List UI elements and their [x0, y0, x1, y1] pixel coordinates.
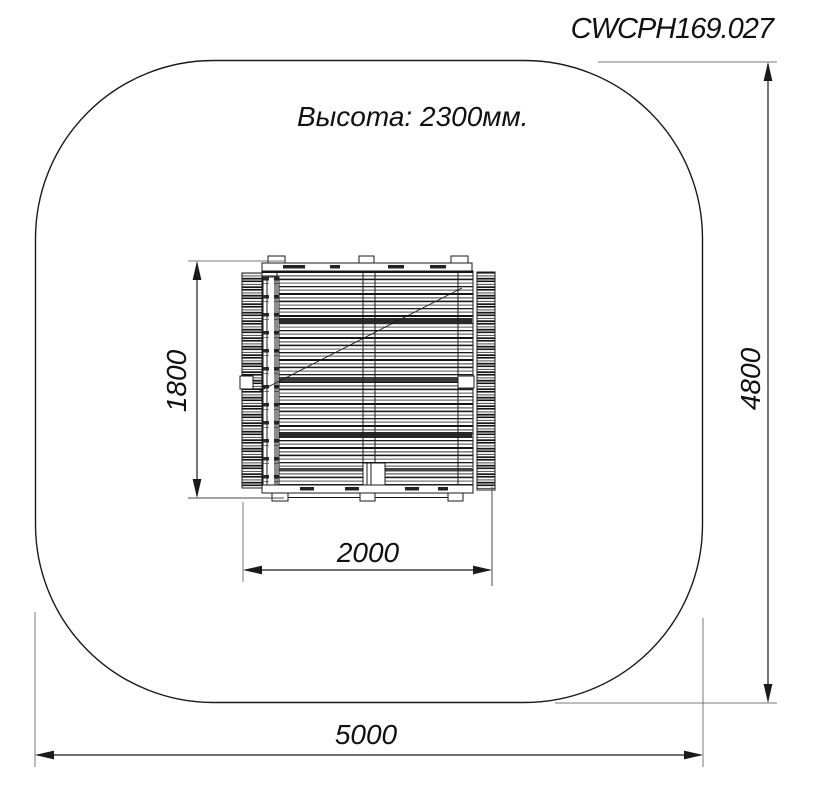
right-side-notch	[458, 376, 474, 388]
right-climber-strip	[477, 272, 495, 490]
arrowhead	[764, 62, 773, 81]
dim-label-safety-zone-depth: 4800	[737, 348, 765, 410]
left-side-notch	[240, 376, 253, 389]
arrowhead	[684, 751, 703, 760]
arrowhead	[35, 751, 54, 760]
dim-label-equipment-depth: 1800	[163, 350, 191, 412]
dim-label-equipment-width: 2000	[278, 539, 458, 567]
arrowhead	[243, 566, 262, 575]
equipment-top-view	[240, 256, 495, 501]
hatch-box	[363, 463, 385, 485]
dim-label-safety-zone-width: 5000	[276, 721, 456, 749]
arrowhead	[193, 479, 202, 498]
arrowhead	[193, 261, 202, 280]
arrowhead	[764, 684, 773, 703]
height-note: Высота: 2300мм.	[297, 103, 528, 131]
drawing-number: CWCPH169.027	[571, 15, 773, 44]
drawing-sheet: CWCPH169.027 Высота: 2300мм. 5000 4800 2…	[0, 0, 817, 788]
arrowhead	[473, 566, 492, 575]
